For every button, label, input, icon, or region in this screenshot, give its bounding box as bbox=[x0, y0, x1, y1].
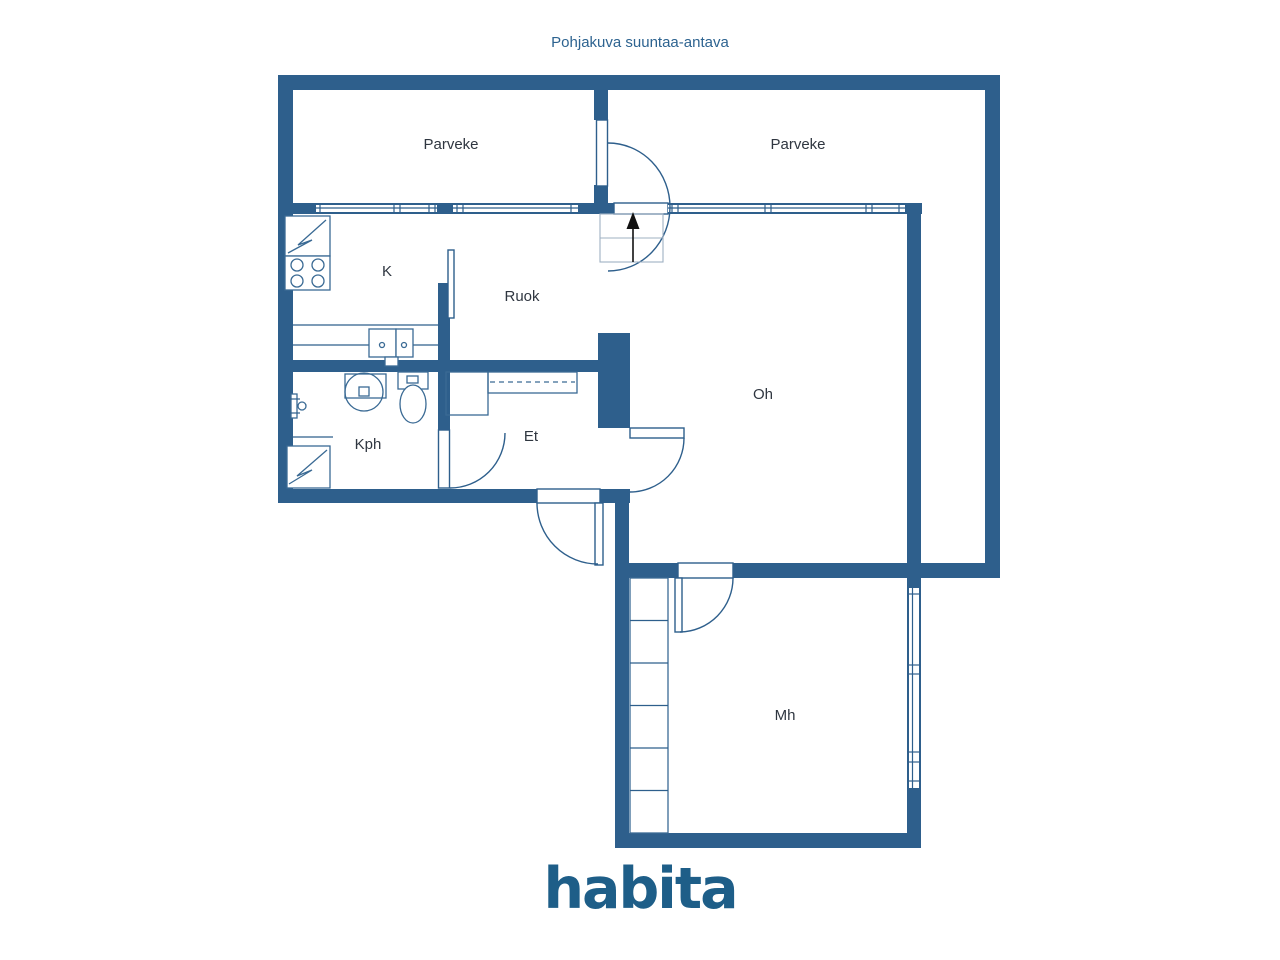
wall-k-kph-divider bbox=[278, 360, 450, 372]
wall-band-stub-center bbox=[578, 203, 614, 214]
wall-band-stub-left bbox=[293, 203, 316, 214]
room-areas bbox=[293, 90, 985, 833]
label-kph: Kph bbox=[355, 436, 382, 453]
mh-door-frame bbox=[678, 563, 733, 578]
wall-mh-north-right bbox=[733, 563, 1000, 578]
entrance-door-swing bbox=[537, 503, 598, 564]
et-oh-door-leaf bbox=[630, 428, 684, 438]
fridge-icon bbox=[285, 216, 330, 256]
label-et: Et bbox=[524, 428, 539, 445]
mh-door-leaf bbox=[675, 578, 682, 632]
habita-logo: habita bbox=[0, 856, 1280, 922]
wall-et-north bbox=[428, 360, 598, 372]
stove-icon bbox=[285, 256, 330, 290]
balcony-door-leaf bbox=[597, 120, 608, 186]
label-oh: Oh bbox=[753, 386, 773, 403]
window-band-left bbox=[316, 203, 437, 214]
room-mh bbox=[630, 578, 907, 833]
label-k: K bbox=[382, 263, 392, 280]
toilet-icon bbox=[398, 372, 428, 423]
kitchen-door-panel bbox=[448, 250, 454, 318]
label-ruok: Ruok bbox=[504, 288, 540, 305]
entrance-door bbox=[537, 489, 603, 565]
label-parveke-right: Parveke bbox=[770, 136, 825, 153]
room-ruok bbox=[450, 214, 615, 360]
wall-oh-east bbox=[907, 203, 921, 575]
floor-plan-page: Pohjakuva suuntaa-antava bbox=[0, 0, 1280, 960]
wall-balcony-partition-upper bbox=[594, 90, 608, 120]
entrance-door-leaf bbox=[595, 503, 603, 565]
wall-top bbox=[278, 75, 1000, 90]
window-band-mid bbox=[453, 203, 578, 214]
wall-south-et-corner bbox=[600, 489, 630, 503]
kph-door-leaf bbox=[439, 430, 450, 488]
entrance-door-frame bbox=[537, 489, 600, 503]
wall-right-outer bbox=[985, 75, 1000, 575]
wall-south-kph-et bbox=[278, 489, 537, 503]
wall-chimney-block bbox=[598, 333, 630, 428]
wall-mh-west bbox=[615, 503, 629, 848]
floor-plan-svg: Parveke Parveke K Ruok Oh Kph Et Mh bbox=[0, 0, 1280, 960]
wall-band-stub-mid bbox=[437, 203, 453, 214]
wall-mh-east-top bbox=[907, 578, 921, 588]
window-mh-east bbox=[907, 588, 921, 788]
wall-mh-south bbox=[615, 833, 921, 848]
balcony-door-frame bbox=[614, 203, 668, 214]
label-mh: Mh bbox=[775, 707, 796, 724]
window-band-right bbox=[668, 203, 905, 214]
label-parveke-left: Parveke bbox=[423, 136, 478, 153]
wall-balcony-partition-lower bbox=[594, 185, 608, 203]
wall-mh-north-left bbox=[615, 563, 678, 578]
